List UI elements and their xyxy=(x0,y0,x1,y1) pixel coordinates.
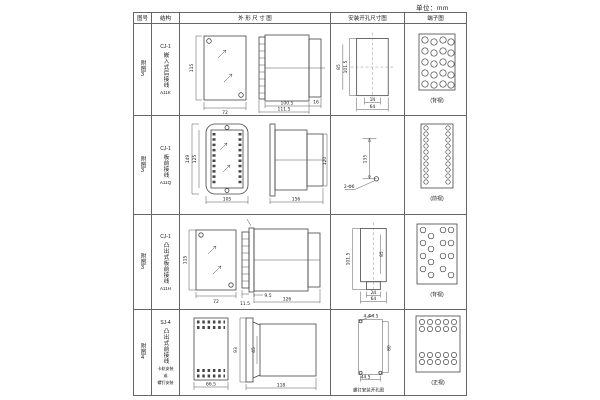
row4-install-drawing: 4-Φ4.5 80 44.5 螺钉安装开孔图 xyxy=(331,310,405,395)
structure-desc: 凸出式前接线 xyxy=(162,328,168,364)
outline-drawing: 115 72 100.5 111.5 16 xyxy=(180,24,330,115)
dim-hole: 4-Φ4.5 xyxy=(364,313,379,319)
terminal-caption: (背视) xyxy=(430,97,444,104)
row2-install-drawing: 135 2-Φ6 xyxy=(331,116,405,215)
dim-h1: 14 xyxy=(370,97,376,103)
structure-desc: 嵌入式后接线 xyxy=(162,52,168,88)
dim-height1: 149 xyxy=(185,155,191,164)
figure-label: 附图3 xyxy=(139,253,145,272)
figure-label: 附图3 xyxy=(139,60,145,79)
outline-drawing: 66.5 93 45 118 xyxy=(180,310,330,395)
dim-v1: 101.5 xyxy=(346,253,352,266)
dim-v: 135 xyxy=(363,155,369,164)
dim-v1: 101.5 xyxy=(343,60,349,73)
structure-desc: 板前接线 xyxy=(162,154,168,178)
install-drawing: 101.5 85 14 64 xyxy=(331,24,404,116)
row4-structure: SJ-4 凸出式前接线 卡轨安装 或 螺钉安装 xyxy=(152,310,180,395)
dim-d1: 11.5 xyxy=(240,301,250,307)
figure-label: 附图3 xyxy=(139,156,145,175)
terminal-diagram: (前视) xyxy=(406,116,466,214)
dim-h2: 64 xyxy=(370,103,376,109)
header-install: 安装开孔尺寸图 xyxy=(331,13,405,24)
row3-figure: 附图3 xyxy=(134,215,152,310)
row2-figure: 附图3 xyxy=(134,116,152,215)
document-page: 单位：mm 图号 结构 外 形 尺 寸 图 安装开孔尺寸图 端子图 附图3 CJ… xyxy=(0,0,600,400)
outline-drawing: 115 72 11.5 9.5 126 xyxy=(180,216,330,308)
dim-depth2: 111.5 xyxy=(278,107,291,113)
dim-hole: 2-Φ6 xyxy=(344,184,355,190)
install-drawing: 4-Φ4.5 80 44.5 螺钉安装开孔图 xyxy=(331,310,404,395)
terminal-caption: (正视) xyxy=(431,379,445,386)
row1-outline-drawing: 115 72 100.5 111.5 16 xyxy=(180,24,331,116)
row4-terminal-diagram: (正视) xyxy=(405,310,466,395)
install-drawing: 101.5 85 24 64 xyxy=(331,216,404,308)
row3-install-drawing: 101.5 85 24 64 xyxy=(331,215,405,310)
dim-width: 72 xyxy=(222,110,228,115)
install-caption: 螺钉安装开孔图 xyxy=(353,386,385,393)
mounting-note-line1: 卡轨安装 xyxy=(158,366,174,371)
row2-terminal-diagram: (前视) xyxy=(405,116,466,215)
dim-inner: 45 xyxy=(251,347,257,353)
header-outline: 外 形 尺 寸 图 xyxy=(180,13,331,24)
dim-h2: 64 xyxy=(371,296,377,302)
dim-width: 105 xyxy=(223,197,232,203)
row1-install-drawing: 101.5 85 14 64 xyxy=(331,24,405,116)
row4-figure: 附图4 xyxy=(134,310,152,395)
row3-outline-drawing: 115 72 11.5 9.5 126 xyxy=(180,215,331,310)
terminal-diagram: (背视) xyxy=(406,216,466,308)
model-label: CJ-1 xyxy=(160,234,171,240)
terminal-diagram: (背视) xyxy=(406,24,466,116)
dim-h: 44.5 xyxy=(361,374,371,380)
dim-h1: 24 xyxy=(371,290,377,296)
row2-structure: CJ-1 板前接线 A11Q xyxy=(152,116,180,215)
terminal-caption: (背视) xyxy=(430,291,444,298)
dim-depth1: 100.5 xyxy=(281,101,294,107)
dim-depth: 126 xyxy=(283,297,292,303)
dim-side-h: 120 xyxy=(322,157,328,166)
row4-outline-drawing: 66.5 93 45 118 xyxy=(180,310,331,395)
header-terminal: 端子图 xyxy=(405,13,466,24)
dim-height: 115 xyxy=(189,64,195,73)
terminal-caption: (前视) xyxy=(430,195,444,202)
row2-outline-drawing: 125 149 105 156 120 xyxy=(180,116,331,215)
mounting-note-line3: 螺钉安装 xyxy=(158,380,174,385)
header-structure: 结构 xyxy=(152,13,180,24)
model-label: CJ-1 xyxy=(160,44,171,50)
dim-side: 16 xyxy=(313,100,319,106)
dim-depth: 156 xyxy=(292,197,301,203)
row1-terminal-diagram: (背视) xyxy=(405,24,466,116)
row3-structure: CJ-1 凸出式板前接线 A11H xyxy=(152,215,180,310)
structure-desc: 凸出式板前接线 xyxy=(162,242,168,284)
model-code: A11Q xyxy=(160,180,171,185)
row1-figure: 附图3 xyxy=(134,24,152,116)
header-figure: 图号 xyxy=(134,13,152,24)
dim-width: 66.5 xyxy=(206,382,216,388)
dim-v2: 85 xyxy=(379,251,385,257)
unit-note: 单位：mm xyxy=(416,2,449,12)
dim-depth: 118 xyxy=(277,383,286,389)
model-label: CJ-1 xyxy=(160,146,171,152)
model-code: A11H xyxy=(160,286,171,291)
dim-d2: 9.5 xyxy=(264,293,271,299)
dim-v2: 85 xyxy=(336,64,342,70)
row1-structure: CJ-1 嵌入式后接线 A11K xyxy=(152,24,180,116)
mounting-note-line2: 或 xyxy=(164,373,168,378)
row3-terminal-diagram: (背视) xyxy=(405,215,466,310)
model-label: SJ-4 xyxy=(160,320,170,326)
model-code: A11K xyxy=(160,90,171,95)
dim-height2: 125 xyxy=(192,155,198,164)
outline-drawing: 125 149 105 156 120 xyxy=(180,116,330,214)
dim-v: 80 xyxy=(387,345,393,351)
terminal-diagram: (正视) xyxy=(406,310,466,395)
dim-height: 115 xyxy=(183,256,189,265)
dim-height: 93 xyxy=(233,347,239,353)
figure-label: 附图4 xyxy=(139,343,145,362)
install-drawing: 135 2-Φ6 xyxy=(331,116,404,214)
dim-width: 72 xyxy=(213,299,219,305)
drawing-table: 图号 结构 外 形 尺 寸 图 安装开孔尺寸图 端子图 附图3 CJ-1 嵌入式… xyxy=(133,12,467,396)
